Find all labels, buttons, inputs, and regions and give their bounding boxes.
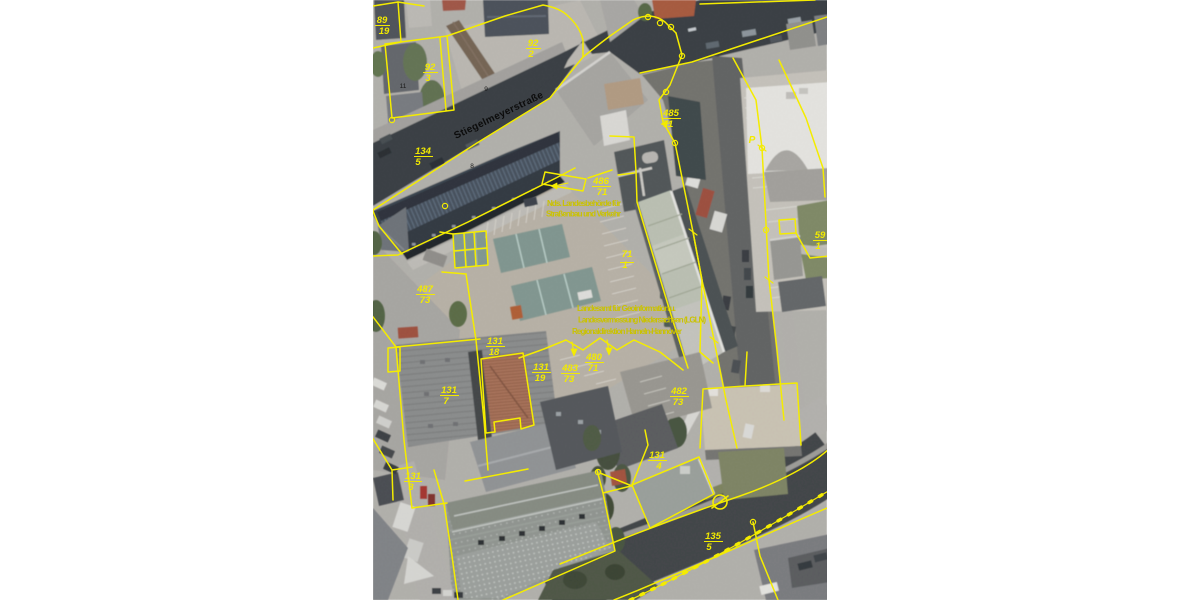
svg-text:18: 18 <box>489 347 500 358</box>
svg-text:59: 59 <box>815 230 826 241</box>
svg-text:487: 487 <box>416 284 434 295</box>
svg-text:9: 9 <box>484 86 488 93</box>
svg-text:482: 482 <box>670 386 688 397</box>
svg-text:8: 8 <box>470 163 474 170</box>
svg-text:131: 131 <box>649 450 665 461</box>
svg-text:3: 3 <box>408 482 414 493</box>
svg-text:1: 1 <box>815 241 820 252</box>
svg-text:131: 131 <box>441 385 457 396</box>
svg-text:486: 486 <box>592 176 610 187</box>
svg-text:135: 135 <box>705 531 722 542</box>
svg-text:19: 19 <box>379 26 390 37</box>
svg-text:5: 5 <box>415 157 421 168</box>
svg-text:73: 73 <box>673 397 684 408</box>
svg-text:134: 134 <box>415 146 432 157</box>
svg-text:92: 92 <box>528 38 539 49</box>
svg-text:485: 485 <box>662 108 680 119</box>
svg-text:89: 89 <box>377 15 388 26</box>
svg-text:11: 11 <box>400 83 407 90</box>
svg-text:Landesamt für Geoinformation u: Landesamt für Geoinformation u. <box>577 304 676 313</box>
svg-text:1: 1 <box>622 260 627 271</box>
svg-text:131: 131 <box>533 362 549 373</box>
svg-text:P: P <box>749 135 756 146</box>
svg-text:131: 131 <box>487 336 503 347</box>
svg-text:19: 19 <box>535 373 546 384</box>
svg-text:71: 71 <box>588 363 599 374</box>
svg-text:Straßenbau und Verkehr: Straßenbau und Verkehr <box>546 210 621 219</box>
svg-text:71: 71 <box>622 249 633 260</box>
svg-text:4: 4 <box>655 461 662 472</box>
svg-text:Landesvermessung Niedersachsen: Landesvermessung Niedersachsen (LGLN) <box>578 316 706 325</box>
svg-text:2: 2 <box>527 49 534 60</box>
svg-text:3: 3 <box>425 73 431 84</box>
svg-text:Nds. Landesbehörde für: Nds. Landesbehörde für <box>547 199 621 208</box>
svg-text:71: 71 <box>597 187 608 198</box>
svg-text:480: 480 <box>585 352 603 363</box>
svg-text:92: 92 <box>425 62 436 73</box>
svg-text:131: 131 <box>405 471 421 482</box>
svg-text:5: 5 <box>706 542 712 553</box>
svg-text:73: 73 <box>420 295 431 306</box>
svg-text:Regionaldirektion Hameln-Hanno: Regionaldirektion Hameln-Hannover <box>572 327 682 336</box>
svg-text:73: 73 <box>564 374 575 385</box>
svg-text:71: 71 <box>663 119 674 130</box>
svg-text:7: 7 <box>443 396 449 407</box>
svg-text:483: 483 <box>561 363 579 374</box>
